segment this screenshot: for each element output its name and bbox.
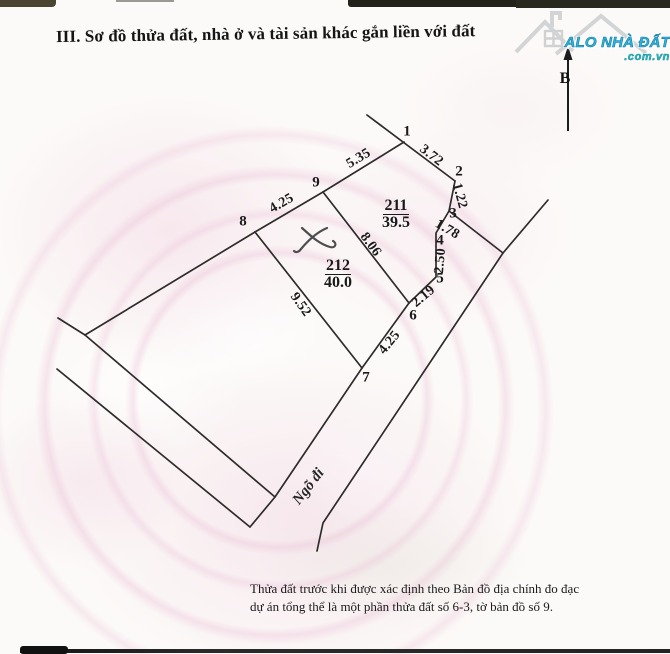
handwritten-x-mark — [294, 228, 335, 252]
plot-diagram — [0, 0, 670, 654]
vertex-label-9: 9 — [312, 175, 320, 192]
scan-edge-band — [20, 646, 68, 654]
scan-edge-band — [116, 0, 174, 2]
footer-note-line2: dự án tổng thể là một phần thửa đất số 6… — [250, 598, 580, 616]
parcel-label-211: 21139.5 — [382, 199, 410, 230]
boundary-line-7 — [255, 232, 362, 368]
scan-edge-band — [20, 649, 670, 653]
parcel-label-212: 21240.0 — [324, 259, 352, 290]
vertex-label-7: 7 — [362, 370, 370, 387]
vertex-label-8: 8 — [239, 214, 247, 231]
parcel-number: 212 — [325, 259, 351, 275]
scanned-land-certificate-page: III. Sơ đồ thửa đất, nhà ở và tài sản kh… — [0, 0, 670, 654]
boundary-line-1 — [367, 115, 455, 181]
alo-nha-dat-logo: ALO NHÀ ĐẤT .com.vn — [505, 0, 670, 75]
measurement-label-5: 2.50 — [432, 248, 450, 275]
scan-edge-band — [0, 0, 56, 7]
boundary-line-8 — [58, 232, 255, 335]
logo-brand-text: ALO NHÀ ĐẤT — [555, 34, 670, 51]
parcel-area: 40.0 — [324, 276, 352, 290]
parcel-number: 211 — [383, 199, 408, 215]
scan-edge-band — [348, 0, 520, 7]
parcel-area: 39.5 — [382, 216, 410, 230]
boundary-line-3 — [409, 181, 455, 303]
boundary-line-13 — [317, 200, 548, 551]
vertex-label-6: 6 — [409, 308, 417, 325]
vertex-label-2: 2 — [455, 164, 463, 181]
footer-note: Thửa đất trước khi được xác định theo Bả… — [250, 580, 580, 616]
logo-domain-text: .com.vn — [555, 51, 670, 63]
footer-note-line1: Thửa đất trước khi được xác định theo Bả… — [250, 580, 580, 598]
vertex-label-1: 1 — [403, 124, 411, 141]
